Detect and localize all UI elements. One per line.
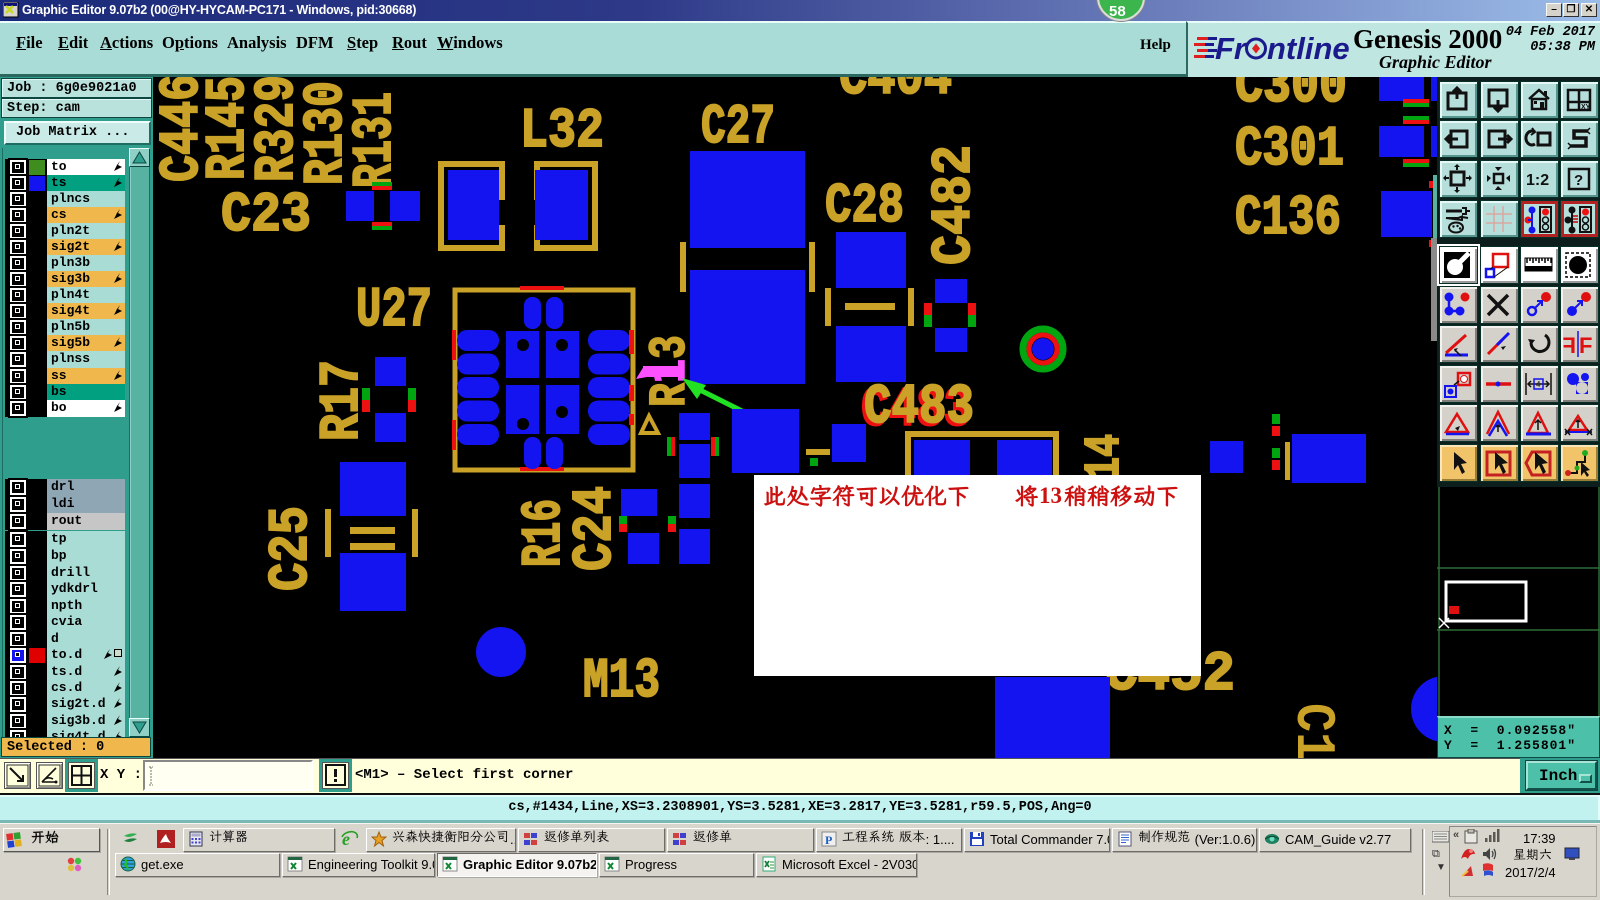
svg-text:L32: L32 bbox=[520, 99, 604, 163]
svg-text:M13: M13 bbox=[583, 649, 660, 713]
svg-text:ntline: ntline bbox=[1267, 31, 1350, 66]
svg-text:C300: C300 bbox=[1235, 77, 1347, 118]
svg-text:C136: C136 bbox=[1235, 186, 1341, 250]
svg-text:C1: C1 bbox=[1281, 703, 1345, 758]
svg-text:14: 14 bbox=[1077, 434, 1134, 480]
svg-text:C482: C482 bbox=[922, 145, 986, 265]
svg-text:C25: C25 bbox=[259, 506, 323, 591]
svg-text:XY: XY bbox=[1581, 104, 1591, 111]
svg-text:?: ? bbox=[1574, 172, 1583, 189]
svg-text:C28: C28 bbox=[825, 174, 904, 238]
svg-text:C483: C483 bbox=[864, 375, 974, 439]
svg-text:13: 13 bbox=[1039, 483, 1062, 508]
svg-text:U27: U27 bbox=[356, 278, 432, 342]
svg-text:C24: C24 bbox=[563, 486, 627, 571]
svg-text:R131: R131 bbox=[343, 92, 407, 188]
svg-text:Fr: Fr bbox=[1215, 31, 1248, 66]
svg-text:P: P bbox=[825, 833, 832, 847]
svg-text:C301: C301 bbox=[1235, 117, 1344, 181]
svg-text:C404: C404 bbox=[839, 77, 952, 110]
svg-text:F: F bbox=[1579, 333, 1592, 358]
svg-text:C23: C23 bbox=[221, 183, 311, 247]
svg-text:4: 4 bbox=[1536, 380, 1541, 389]
svg-text:1:2: 1:2 bbox=[1526, 172, 1549, 189]
svg-text:F: F bbox=[1563, 333, 1576, 358]
svg-text:C27: C27 bbox=[701, 95, 775, 159]
